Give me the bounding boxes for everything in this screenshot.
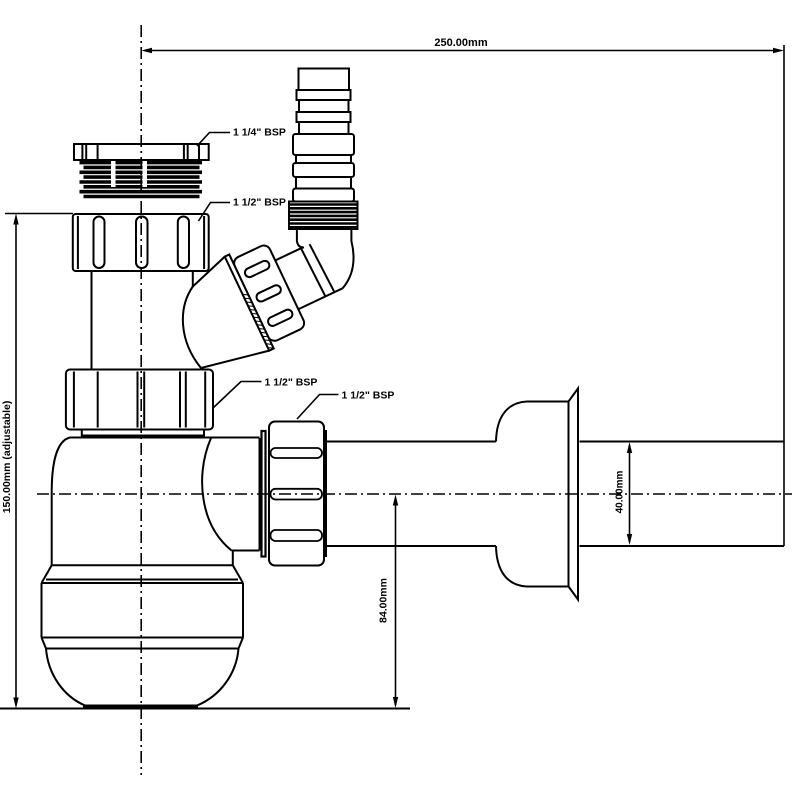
svg-text:84.00mm: 84.00mm — [378, 578, 390, 623]
svg-text:1 1/2" BSP: 1 1/2" BSP — [265, 377, 318, 389]
svg-text:150.00mm (adjustable): 150.00mm (adjustable) — [1, 401, 13, 514]
svg-text:40.00mm: 40.00mm — [615, 470, 626, 513]
svg-text:1 1/4" BSP: 1 1/4" BSP — [233, 127, 286, 139]
svg-text:250.00mm: 250.00mm — [434, 37, 487, 49]
svg-text:1 1/2" BSP: 1 1/2" BSP — [233, 197, 286, 209]
svg-text:1 1/2" BSP: 1 1/2" BSP — [342, 390, 395, 402]
